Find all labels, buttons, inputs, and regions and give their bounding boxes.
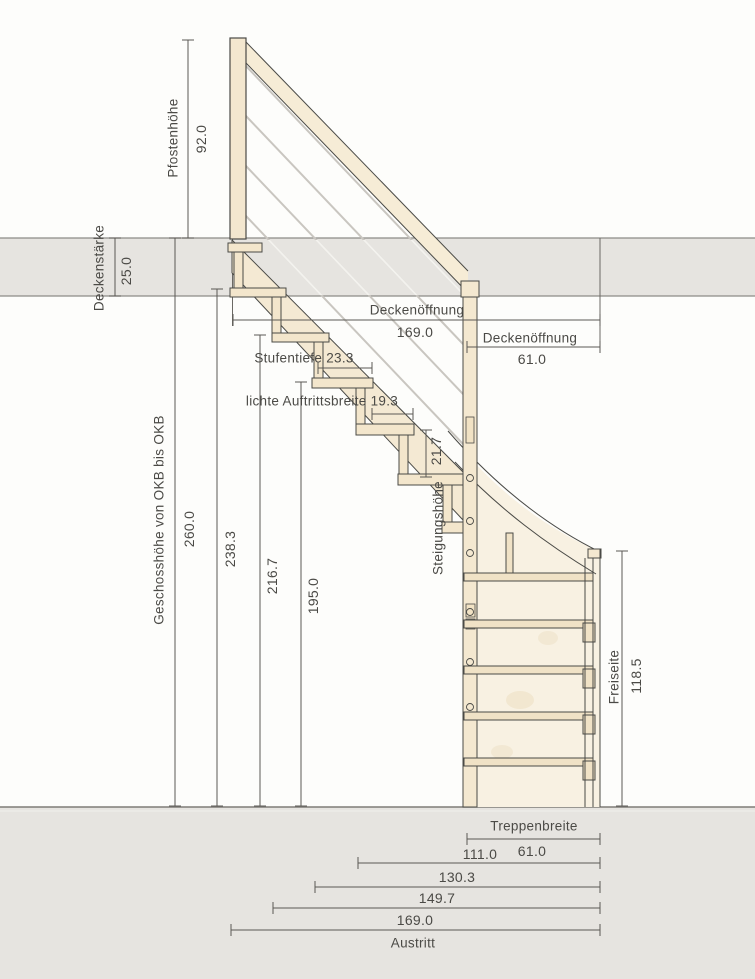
deckenoeffnung-lang-label: Deckenöffnung xyxy=(370,303,464,317)
steigungshoehe-value: 21.7 xyxy=(429,437,443,465)
height-195-value: 195.0 xyxy=(306,578,320,615)
deckenstaerke-label: Deckenstärke xyxy=(92,225,106,311)
pfostenhoehe-value: 92.0 xyxy=(194,125,208,153)
floor-slab xyxy=(0,807,755,979)
deckenoeffnung-lang-value: 169.0 xyxy=(397,325,434,339)
austritt-breite-169: 169.0 xyxy=(397,913,434,927)
austritt-label: Austritt xyxy=(391,936,435,950)
austritt-breite-130: 130.3 xyxy=(439,870,476,884)
austritt-breite-149: 149.7 xyxy=(419,891,456,905)
freiseite-label: Freiseite xyxy=(607,650,621,704)
treppenbreite-value: 61.0 xyxy=(518,844,546,858)
height-216-value: 216.7 xyxy=(265,558,279,595)
deckenstaerke-value: 25.0 xyxy=(119,257,133,285)
freiseite-value: 118.5 xyxy=(629,658,643,694)
ceiling-slab xyxy=(0,238,755,296)
steigungshoehe-label: Steigungshöhe xyxy=(431,481,445,575)
newel-post-top xyxy=(230,38,246,239)
treppenbreite-label: Treppenbreite xyxy=(490,819,577,833)
auftrittsbreite-label: lichte Auftrittsbreite 19.3 xyxy=(246,394,398,408)
austritt-breite-111: 111.0 xyxy=(463,847,497,861)
height-238-value: 238.3 xyxy=(223,531,237,568)
geschosshoehe-label: Geschosshöhe von OKB bis OKB xyxy=(152,415,166,625)
staircase-section-drawing: Pfostenhöhe 92.0 Deckenstärke 25.0 Gesch… xyxy=(0,0,755,979)
pfostenhoehe-label: Pfostenhöhe xyxy=(166,98,180,177)
deckenoeffnung-kurz-value: 61.0 xyxy=(518,352,546,366)
deckenoeffnung-kurz-label: Deckenöffnung xyxy=(483,331,577,345)
geschosshoehe-value: 260.0 xyxy=(182,511,196,548)
stufentiefe-label: Stufentiefe 23.3 xyxy=(254,351,353,365)
drawing-geometry xyxy=(0,0,755,979)
